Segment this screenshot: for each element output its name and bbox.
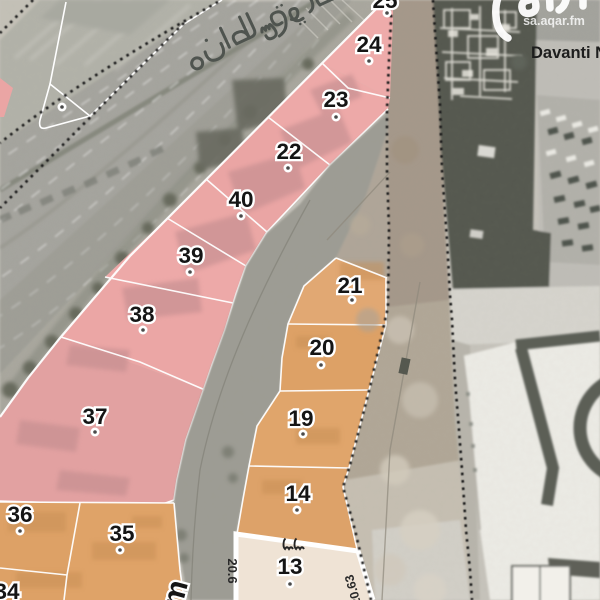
svg-text:14: 14 xyxy=(285,481,311,506)
svg-text:19: 19 xyxy=(288,406,313,431)
svg-text:23: 23 xyxy=(323,87,348,112)
svg-text:sa.aqar.fm: sa.aqar.fm xyxy=(523,14,585,28)
svg-text:21: 21 xyxy=(337,273,362,298)
svg-text:39: 39 xyxy=(178,243,203,268)
svg-text:13: 13 xyxy=(277,554,302,579)
svg-text:37: 37 xyxy=(82,404,107,429)
svg-text:22: 22 xyxy=(276,139,301,164)
svg-text:20.6: 20.6 xyxy=(225,558,240,583)
svg-text:38: 38 xyxy=(129,302,154,327)
svg-text:34: 34 xyxy=(0,579,20,600)
svg-text:36: 36 xyxy=(7,502,32,527)
svg-text:20: 20 xyxy=(309,335,334,360)
svg-text:40: 40 xyxy=(228,187,253,212)
svg-text:35: 35 xyxy=(109,521,134,546)
svg-text:24: 24 xyxy=(356,32,382,57)
svg-text:Davanti N: Davanti N xyxy=(531,44,600,62)
